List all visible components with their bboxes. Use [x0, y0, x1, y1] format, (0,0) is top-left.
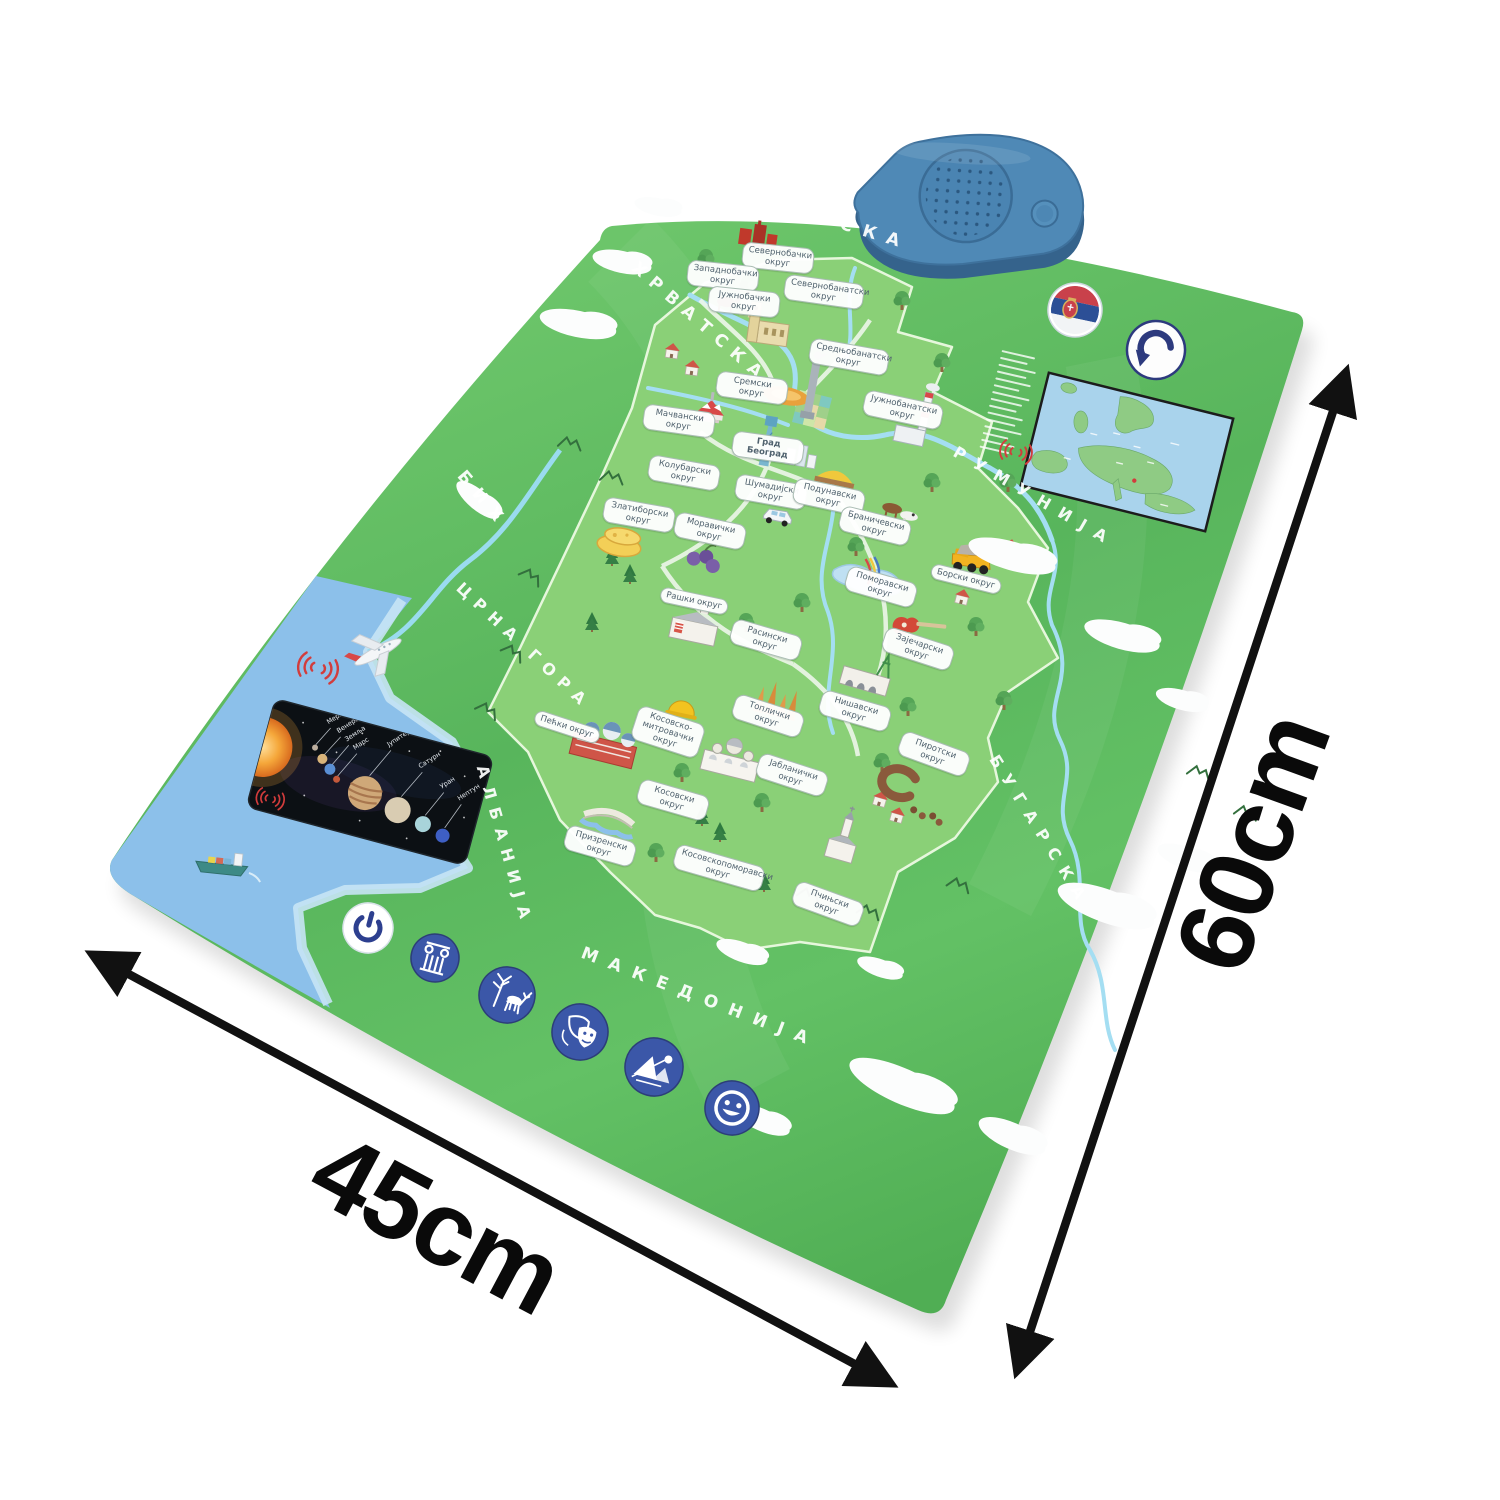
- poster-graphic: Меркур Венера Земља Марс Јупитер Сатурн …: [0, 0, 1500, 1500]
- speaker-module: [850, 126, 1090, 289]
- poster: Меркур Венера Земља Марс Јупитер Сатурн …: [110, 192, 1303, 1313]
- product-photo: Меркур Венера Земља Марс Јупитер Сатурн …: [0, 0, 1500, 1500]
